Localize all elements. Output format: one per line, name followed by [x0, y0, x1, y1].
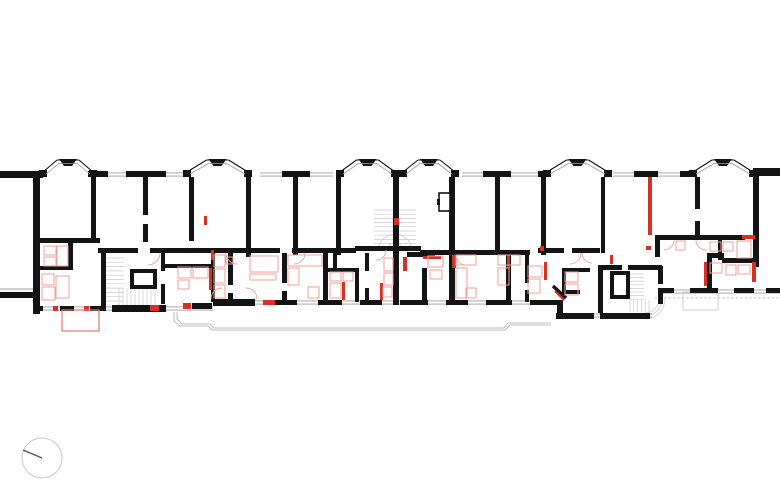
floor-plan-page	[0, 0, 780, 499]
north-needle	[23, 450, 42, 458]
fireplace	[439, 193, 450, 211]
floor-plan-svg	[0, 0, 780, 499]
terrace-outline	[174, 312, 551, 330]
red-walls	[53, 177, 756, 311]
fireplace-flue	[437, 199, 440, 205]
basement-outline	[683, 292, 718, 310]
stair-treads	[104, 210, 649, 312]
balcony-outline	[62, 310, 99, 331]
